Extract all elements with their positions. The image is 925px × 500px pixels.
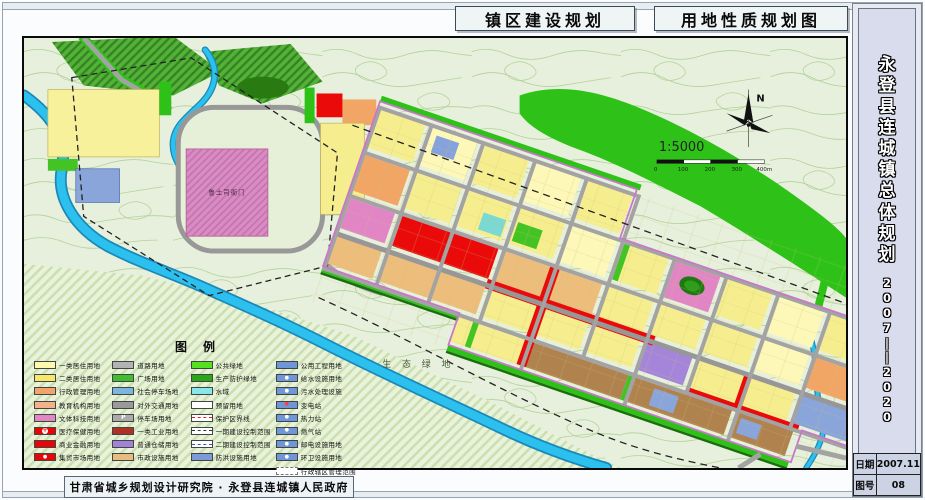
legend-swatch — [191, 401, 213, 409]
legend-label: 商业金融用地 — [59, 439, 100, 449]
legend-label: 防洪设施用地 — [216, 452, 257, 462]
legend-swatch: P — [112, 414, 134, 422]
legend-label: 普通仓储用地 — [137, 439, 178, 449]
legend-item: 一期建设控制范围 — [191, 426, 271, 436]
legend-symbol-dot: ● — [285, 376, 289, 381]
legend-item: 预留用地 — [191, 400, 271, 410]
legend-swatch — [112, 440, 134, 448]
legend-item: ●变电站 — [276, 400, 356, 410]
legend-swatch — [191, 361, 213, 369]
scale-label: 1:5000 — [659, 140, 704, 155]
legend-item: 二类居住用地 — [34, 373, 107, 383]
legend-swatch: ● — [276, 427, 298, 435]
legend-label: 社会停车场地 — [137, 386, 178, 396]
legend-label: 一类工业用地 — [137, 426, 178, 436]
title-landuse-map: 用地性质规划图 — [654, 6, 848, 31]
north-label: N — [756, 93, 764, 104]
legend-symbol-medical: + — [42, 428, 48, 434]
legend-label: 集贸市场用地 — [59, 452, 100, 462]
legend-item: ●邮电设施用地 — [276, 439, 356, 449]
legend-label: 公用工程用地 — [301, 360, 342, 370]
legend-label: 一类居住用地 — [59, 360, 100, 370]
legend-label: 广场用地 — [137, 373, 165, 383]
legend-swatch: ● — [276, 440, 298, 448]
legend-item: 道路用地 — [112, 360, 185, 370]
legend-symbol-dot: ● — [285, 428, 289, 433]
legend-swatch — [276, 361, 298, 369]
legend-swatch — [34, 414, 56, 422]
legend-label: 公共绿地 — [216, 360, 244, 370]
legend-swatch — [276, 467, 298, 475]
legend-label: 环卫设施用地 — [301, 452, 342, 462]
scale-tick-0: 0 — [654, 167, 658, 173]
legend-label: 邮电设施用地 — [301, 439, 342, 449]
scale-tick-3: 300 — [732, 167, 743, 173]
legend-symbol-dot: ● — [285, 415, 289, 420]
legend-swatch — [191, 387, 213, 395]
legend-item: 水域 — [191, 386, 271, 396]
legend-swatch: ● — [276, 401, 298, 409]
sheet-meta-table: 日期 2007.11 图号 08 — [853, 453, 921, 496]
legend-item: 社会停车场地 — [112, 386, 185, 396]
legend-label: 水域 — [216, 386, 230, 396]
legend-label: 预留用地 — [216, 400, 244, 410]
legend-item: 公用工程用地 — [276, 360, 356, 370]
legend-item: ●集贸市场用地 — [34, 452, 107, 462]
legend-swatch — [34, 440, 56, 448]
legend-item: 公共绿地 — [191, 360, 271, 370]
legend-label: 污水处理设施 — [301, 386, 342, 396]
legend-label: 燃气站 — [301, 426, 322, 436]
legend-item: 行政辖区管理范围 — [276, 466, 356, 476]
legend-swatch — [34, 401, 56, 409]
legend-swatch — [34, 361, 56, 369]
legend-label: 二类居住用地 — [59, 373, 100, 383]
legend-item: ●给水设施用地 — [276, 373, 356, 383]
legend-item: ●热力站 — [276, 413, 356, 423]
scale-tick-2: 200 — [705, 167, 716, 173]
plan-sheet: 镇区建设规划 用地性质规划图 — [0, 0, 925, 500]
legend: 图例 一类居住用地二类居住用地行政管理用地教育机构用地文体科技用地+医疗保健用地… — [34, 338, 356, 479]
map-frame: N 1:5000 0 100 200 300 400m 生 态 绿 地 鲁土司衙… — [22, 36, 848, 470]
legend-columns: 一类居住用地二类居住用地行政管理用地教育机构用地文体科技用地+医疗保健用地商业金… — [34, 360, 356, 479]
legend-label: 生产防护绿地 — [216, 373, 257, 383]
sidebar-years-chars: 2007||2020 — [883, 276, 891, 425]
legend-swatch — [112, 453, 134, 461]
legend-label: 行政管理用地 — [59, 386, 100, 396]
legend-swatch: ● — [276, 374, 298, 382]
scale-tick-1: 100 — [678, 167, 689, 173]
legend-item: +医疗保健用地 — [34, 426, 107, 436]
legend-swatch — [191, 427, 213, 435]
legend-label: 道路用地 — [137, 360, 165, 370]
legend-item: 行政管理用地 — [34, 386, 107, 396]
legend-symbol-dot: ● — [285, 389, 289, 394]
legend-label: 停车场用地 — [137, 413, 172, 423]
legend-item: ●环卫设施用地 — [276, 452, 356, 462]
legend-item: ●污水处理设施 — [276, 386, 356, 396]
legend-label: 对外交通用地 — [137, 400, 178, 410]
legend-item: P停车场用地 — [112, 413, 185, 423]
legend-symbol-P: P — [121, 415, 125, 421]
legend-swatch — [34, 374, 56, 382]
legend-swatch: ● — [34, 453, 56, 461]
legend-swatch: ● — [276, 387, 298, 395]
map-label-historic: 鲁土司衙门 — [208, 188, 245, 197]
legend-item: 普通仓储用地 — [112, 439, 185, 449]
title-block-sidebar: 永登县连城镇总体规划 2007||2020 日期 2007.11 图号 08 — [852, 3, 922, 497]
legend-swatch — [191, 453, 213, 461]
legend-symbol-bolt: ● — [285, 402, 289, 407]
legend-item: 一类居住用地 — [34, 360, 107, 370]
date-value: 2007.11 — [876, 454, 920, 475]
scale-tick-4: 400m — [756, 167, 772, 173]
legend-item: ●燃气站 — [276, 426, 356, 436]
sidebar-title-cell: 永登县连城镇总体规划 2007||2020 — [858, 8, 916, 454]
legend-title: 图例 — [34, 338, 356, 355]
legend-item: 教育机构用地 — [34, 400, 107, 410]
legend-item: 广场用地 — [112, 373, 185, 383]
legend-symbol-dot: ● — [43, 455, 47, 460]
legend-swatch: ● — [276, 414, 298, 422]
legend-item: 保护区界线 — [191, 413, 271, 423]
legend-item: 商业金融用地 — [34, 439, 107, 449]
legend-swatch — [112, 387, 134, 395]
legend-swatch — [191, 440, 213, 448]
legend-symbol-dot: ● — [285, 442, 289, 447]
map-label-eco: 生 态 绿 地 — [382, 358, 454, 370]
legend-item: 防洪设施用地 — [191, 452, 271, 462]
sheet-no-value: 08 — [876, 475, 920, 496]
legend-label: 给水设施用地 — [301, 373, 342, 383]
legend-label: 医疗保健用地 — [59, 426, 100, 436]
legend-label: 一期建设控制范围 — [216, 426, 271, 436]
sheet-no-label: 图号 — [854, 475, 877, 496]
legend-item: 一类工业用地 — [112, 426, 185, 436]
legend-label: 保护区界线 — [216, 413, 251, 423]
legend-label: 文体科技用地 — [59, 413, 100, 423]
legend-label: 市政设施用地 — [137, 452, 178, 462]
legend-item: 文体科技用地 — [34, 413, 107, 423]
date-label: 日期 — [854, 454, 877, 475]
legend-label: 二期建设控制范围 — [216, 439, 271, 449]
title-construction-plan: 镇区建设规划 — [455, 6, 635, 31]
legend-swatch — [112, 374, 134, 382]
legend-item: 生产防护绿地 — [191, 373, 271, 383]
legend-item: 市政设施用地 — [112, 452, 185, 462]
legend-swatch — [191, 374, 213, 382]
legend-swatch — [112, 427, 134, 435]
legend-label: 热力站 — [301, 413, 322, 423]
legend-swatch: ● — [276, 453, 298, 461]
credit-box: 甘肃省城乡规划设计研究院 · 永登县连城镇人民政府 — [64, 476, 354, 498]
legend-swatch — [34, 387, 56, 395]
legend-label: 变电站 — [301, 400, 322, 410]
legend-label: 教育机构用地 — [59, 400, 100, 410]
legend-item: 对外交通用地 — [112, 400, 185, 410]
legend-swatch: + — [34, 427, 56, 435]
legend-label: 行政辖区管理范围 — [301, 466, 356, 476]
sidebar-title-chars: 永登县连城镇总体规划 — [879, 55, 896, 266]
legend-item: 二期建设控制范围 — [191, 439, 271, 449]
legend-symbol-dot: ● — [285, 455, 289, 460]
legend-swatch — [112, 361, 134, 369]
legend-swatch — [191, 414, 213, 422]
legend-swatch — [112, 401, 134, 409]
